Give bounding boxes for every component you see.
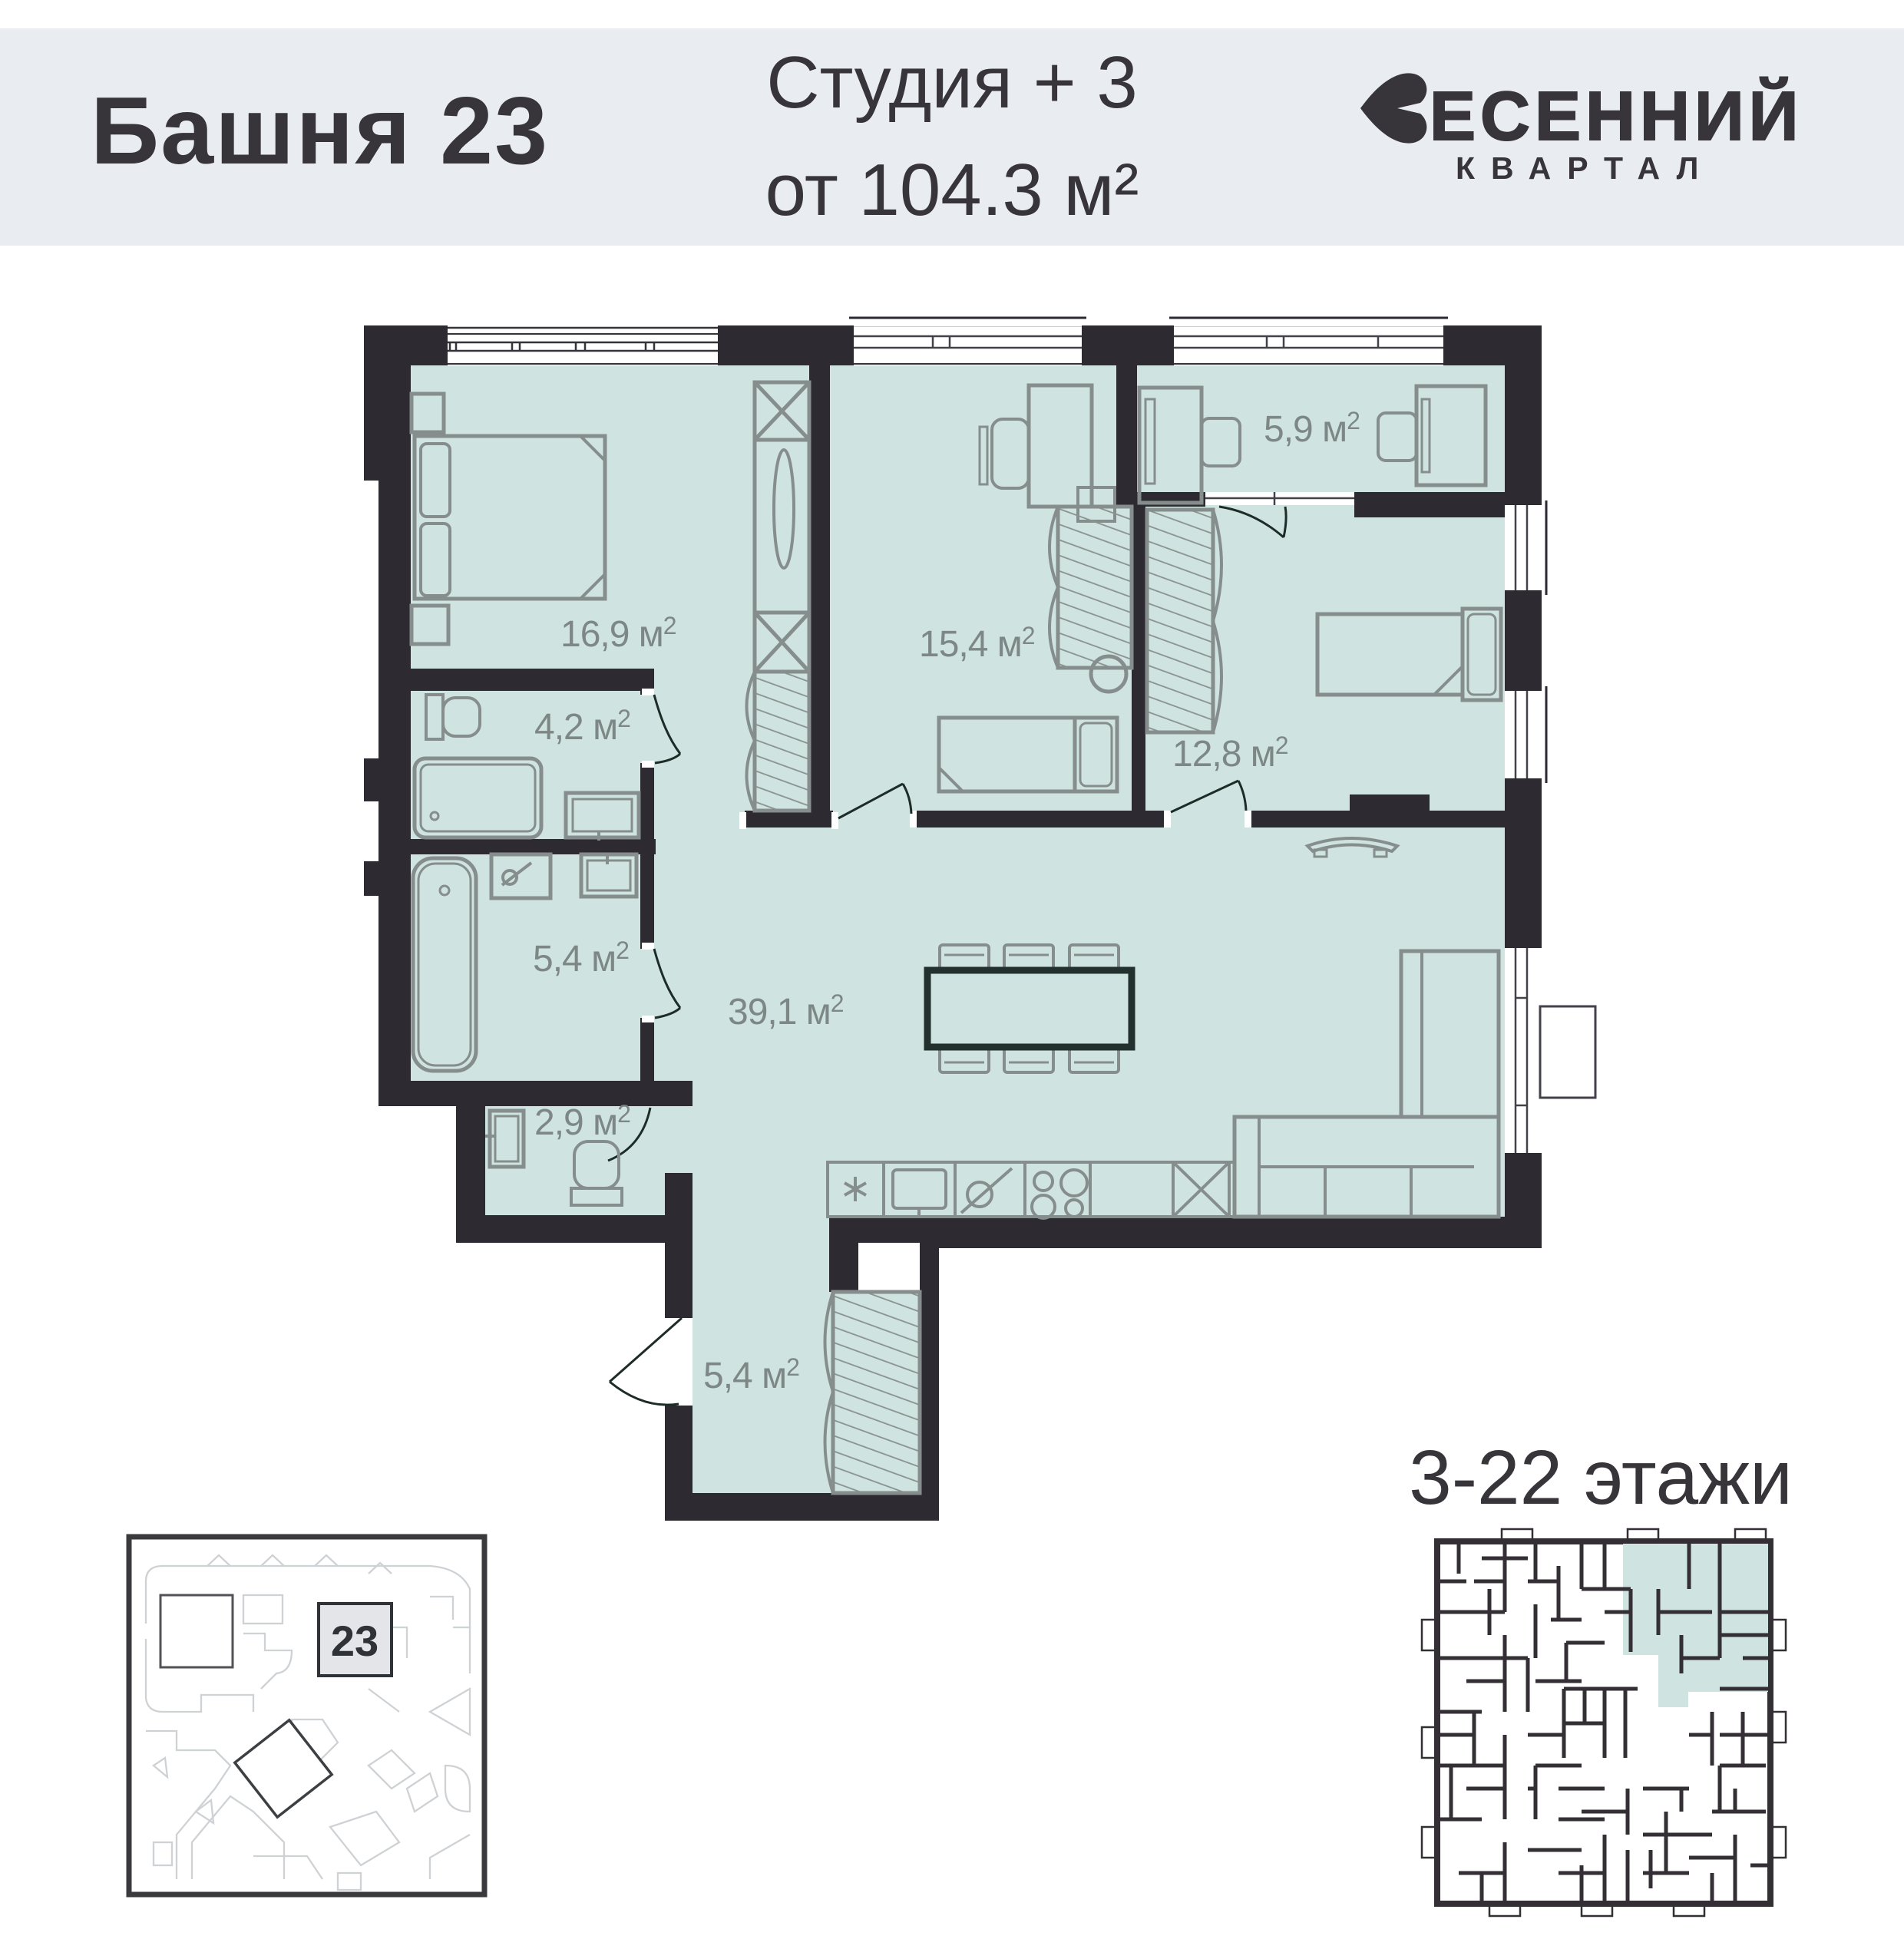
svg-text:23: 23	[331, 1617, 378, 1665]
svg-text:КВАРТАЛ: КВАРТАЛ	[1456, 150, 1714, 186]
svg-text:4,2 м2: 4,2 м2	[534, 705, 630, 748]
svg-text:12,8 м2: 12,8 м2	[1172, 732, 1288, 775]
svg-text:39,1 м2: 39,1 м2	[728, 989, 844, 1032]
svg-text:15,4 м2: 15,4 м2	[919, 622, 1035, 665]
svg-text:5,9 м2: 5,9 м2	[1264, 407, 1360, 450]
svg-text:Башня 23: Башня 23	[91, 78, 549, 184]
svg-text:Студия + 3: Студия + 3	[766, 41, 1138, 124]
svg-text:ЕСЕННИЙ: ЕСЕННИЙ	[1430, 76, 1803, 155]
svg-text:5,4 м2: 5,4 м2	[533, 937, 629, 979]
svg-text:2,9 м2: 2,9 м2	[534, 1100, 630, 1143]
svg-text:5,4 м2: 5,4 м2	[703, 1353, 799, 1396]
svg-text:3-22 этажи: 3-22 этажи	[1409, 1435, 1793, 1521]
svg-text:от 104.3 м²: от 104.3 м²	[765, 149, 1139, 231]
svg-text:16,9 м2: 16,9 м2	[560, 612, 676, 655]
